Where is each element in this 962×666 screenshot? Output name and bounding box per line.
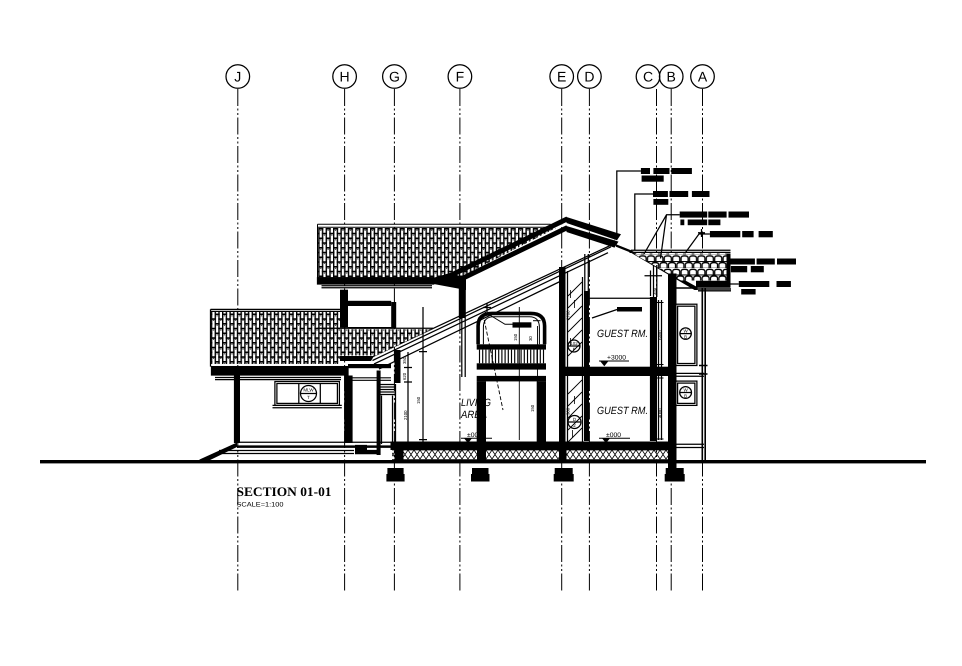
svg-text:SCALE=1:100: SCALE=1:100 xyxy=(237,502,284,509)
svg-text:E: E xyxy=(557,69,566,85)
svg-text:300: 300 xyxy=(566,407,571,415)
svg-text:W: W xyxy=(683,329,688,334)
svg-text:MLW: MLW xyxy=(303,388,314,393)
svg-text:T: T xyxy=(307,395,310,400)
svg-text:GUEST RM.: GUEST RM. xyxy=(597,405,648,417)
svg-text:G: G xyxy=(389,69,400,85)
svg-text:350: 350 xyxy=(652,287,657,295)
svg-text:B: B xyxy=(684,335,687,340)
svg-text:150: 150 xyxy=(530,404,535,412)
svg-text:H: H xyxy=(340,69,350,85)
svg-text:150: 150 xyxy=(513,333,518,341)
svg-text:0400: 0400 xyxy=(658,330,663,340)
svg-text:300: 300 xyxy=(538,410,543,418)
svg-text:F: F xyxy=(456,69,465,85)
svg-text:+3000: +3000 xyxy=(607,355,626,362)
svg-text:2700: 2700 xyxy=(566,310,571,320)
svg-text:GUEST RM.: GUEST RM. xyxy=(597,328,648,340)
svg-text:LIVING: LIVING xyxy=(461,397,491,409)
svg-text:J: J xyxy=(234,69,241,85)
svg-text:2100: 2100 xyxy=(403,410,408,420)
svg-text:350: 350 xyxy=(402,356,407,364)
svg-text:AREA: AREA xyxy=(460,409,487,421)
svg-text:B: B xyxy=(667,69,676,85)
svg-text:D: D xyxy=(584,69,594,85)
svg-text:C: C xyxy=(643,69,653,85)
svg-text:102: 102 xyxy=(570,341,578,346)
svg-text:W: W xyxy=(683,388,688,393)
svg-text:4000: 4000 xyxy=(658,408,663,418)
svg-text:30: 30 xyxy=(528,336,533,341)
svg-text:SECTION 01-01: SECTION 01-01 xyxy=(237,484,332,499)
svg-text:F: F xyxy=(573,347,576,352)
svg-text:B: B xyxy=(684,394,687,399)
svg-text:A: A xyxy=(698,69,708,85)
svg-text:150: 150 xyxy=(416,396,421,404)
svg-text:620: 620 xyxy=(402,372,407,380)
